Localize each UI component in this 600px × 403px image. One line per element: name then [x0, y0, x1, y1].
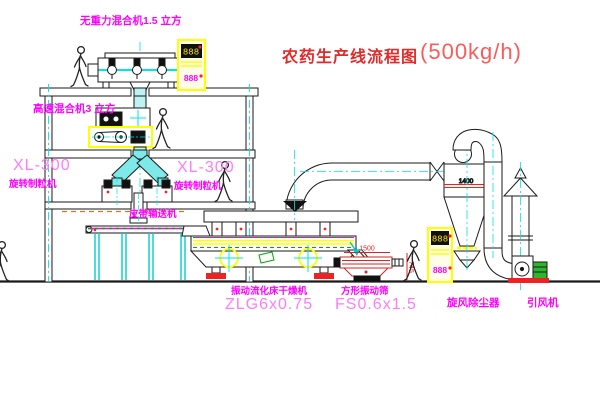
diagram-title-capacity: (500kg/h) — [420, 39, 522, 64]
cyclone-label: 旋风除尘器 — [447, 298, 500, 309]
granulator-left-model-label: XL-300 — [13, 158, 71, 174]
fan-label: 引风机 — [527, 298, 559, 309]
dryer-model-label: ZLG6x0.75 — [225, 297, 313, 313]
fan-motor — [533, 262, 547, 280]
worker-top-floor — [71, 47, 88, 87]
granulator-left — [102, 176, 132, 205]
cabinet-1-readout: 888 — [184, 73, 198, 83]
screen-length-dim: 1500 — [359, 246, 375, 253]
granulator-right-model-label: XL-300 — [177, 160, 235, 176]
control-cabinet-1: 888 888 — [178, 40, 205, 90]
granulator-right — [142, 176, 172, 205]
fluid-bed-dryer — [182, 211, 370, 279]
worker-second-floor — [153, 109, 170, 149]
gravity-mixer-label: 无重力混合机1.5 立方 — [80, 12, 182, 28]
cabinet-2-display: 888 — [432, 235, 448, 245]
cabinet-2-readout: 888 — [433, 265, 447, 275]
process-flow-diagram: 888 888 — [0, 0, 600, 403]
granulator-right-name-label: 旋转制粒机 — [174, 182, 222, 192]
induced-draft-fan — [508, 256, 549, 283]
cabinet-1-display: 888 — [183, 48, 199, 58]
dryer-hood-stubs — [212, 222, 330, 236]
gravity-mixer-label-text: 无重力混合机1.5 立方 — [80, 15, 182, 27]
high-speed-mixer-label: 高速混合机3 立方 — [33, 104, 115, 115]
control-cabinet-2: 888 888 — [428, 228, 452, 282]
screen-model-label: FS0.6x1.5 — [335, 297, 417, 313]
worker-left-edge — [0, 242, 9, 282]
granulator-left-name-label: 旋转制粒机 — [9, 180, 57, 190]
belt-conveyor — [86, 226, 194, 280]
exhaust-duct — [283, 150, 462, 220]
cyclone-dimension: 1400 — [459, 178, 474, 185]
diagram-title-text: 农药生产线流程图 — [282, 49, 418, 66]
belt-conveyor-label: 皮带输送机 — [129, 210, 177, 220]
diagram-title: 农药生产线流程图(500kg/h) — [282, 44, 522, 66]
